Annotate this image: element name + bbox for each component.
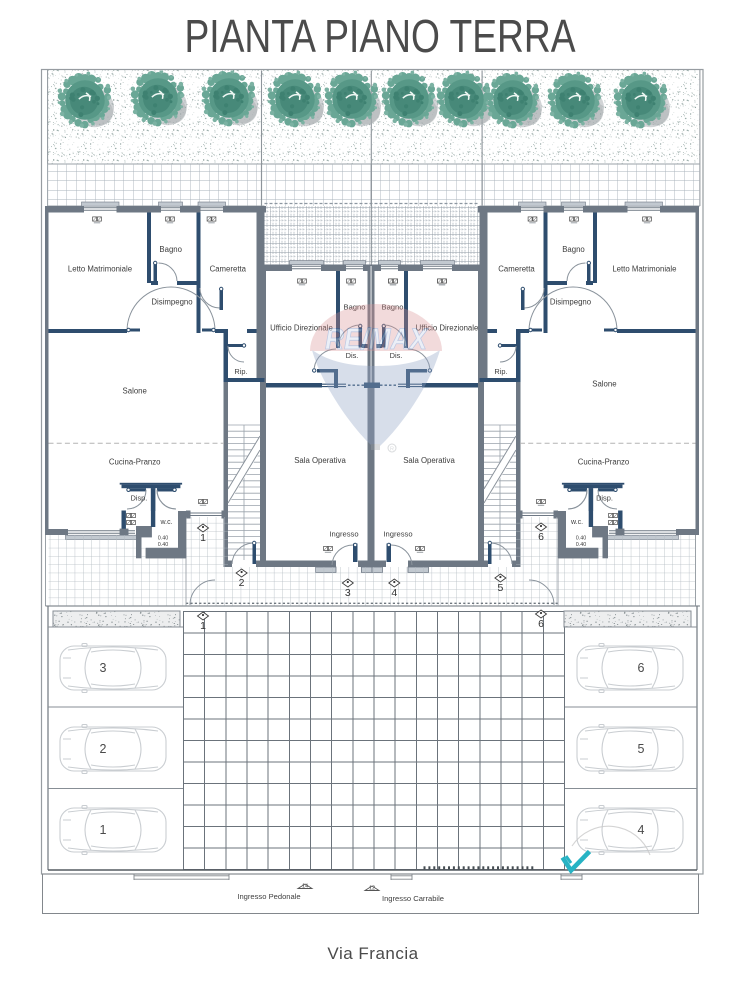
svg-text:Bagno: Bagno xyxy=(562,245,585,254)
svg-text:Letto Matrimoniale: Letto Matrimoniale xyxy=(68,265,132,274)
svg-text:4: 4 xyxy=(638,823,645,837)
svg-text:0.40: 0.40 xyxy=(158,542,169,548)
svg-text:Ingresso Pedonale: Ingresso Pedonale xyxy=(237,892,300,901)
svg-text:0.40: 0.40 xyxy=(576,542,587,548)
svg-text:14: 14 xyxy=(302,884,308,890)
svg-text:Letto Matrimoniale: Letto Matrimoniale xyxy=(612,265,676,274)
svg-text:6: 6 xyxy=(538,531,544,543)
svg-text:RE/MAX: RE/MAX xyxy=(325,323,429,356)
svg-text:6: 6 xyxy=(538,618,544,630)
svg-text:6: 6 xyxy=(638,661,645,675)
svg-text:Disimpegno: Disimpegno xyxy=(151,298,193,307)
svg-text:Via Francia: Via Francia xyxy=(327,944,418,963)
svg-text:1: 1 xyxy=(200,532,206,544)
svg-text:1: 1 xyxy=(100,823,107,837)
svg-text:1: 1 xyxy=(200,620,206,632)
svg-text:Ingresso: Ingresso xyxy=(329,530,358,539)
svg-text:w.c.: w.c. xyxy=(570,519,583,526)
svg-text:Cucina-Pranzo: Cucina-Pranzo xyxy=(109,458,161,467)
svg-text:Disp.: Disp. xyxy=(596,494,613,503)
svg-text:3: 3 xyxy=(100,661,107,675)
svg-text:Salone: Salone xyxy=(592,380,616,389)
svg-text:0.40: 0.40 xyxy=(576,536,587,542)
svg-text:5: 5 xyxy=(497,582,503,594)
svg-text:Disimpegno: Disimpegno xyxy=(550,298,592,307)
svg-text:Cameretta: Cameretta xyxy=(210,265,247,274)
svg-text:3: 3 xyxy=(345,587,351,599)
svg-text:4: 4 xyxy=(391,587,397,599)
svg-text:12: 12 xyxy=(369,886,375,892)
svg-text:Cameretta: Cameretta xyxy=(498,265,535,274)
svg-text:Ingresso: Ingresso xyxy=(383,530,412,539)
svg-text:Disp.: Disp. xyxy=(130,494,147,503)
svg-text:PIANTA PIANO TERRA: PIANTA PIANO TERRA xyxy=(185,10,576,62)
svg-text:w.c.: w.c. xyxy=(159,519,172,526)
svg-text:Ingresso Carrabile: Ingresso Carrabile xyxy=(382,894,444,903)
svg-text:R: R xyxy=(390,447,394,453)
svg-text:2: 2 xyxy=(100,742,107,756)
svg-text:5: 5 xyxy=(638,742,645,756)
svg-text:Bagno: Bagno xyxy=(159,245,182,254)
svg-text:Sala Operativa: Sala Operativa xyxy=(403,456,455,465)
svg-text:Sala Operativa: Sala Operativa xyxy=(294,456,346,465)
svg-text:2: 2 xyxy=(239,577,245,589)
svg-text:Rip.: Rip. xyxy=(494,367,507,376)
svg-text:Cucina-Pranzo: Cucina-Pranzo xyxy=(578,458,630,467)
svg-text:Rip.: Rip. xyxy=(234,367,247,376)
svg-text:0.40: 0.40 xyxy=(158,536,169,542)
svg-text:Salone: Salone xyxy=(123,387,147,396)
